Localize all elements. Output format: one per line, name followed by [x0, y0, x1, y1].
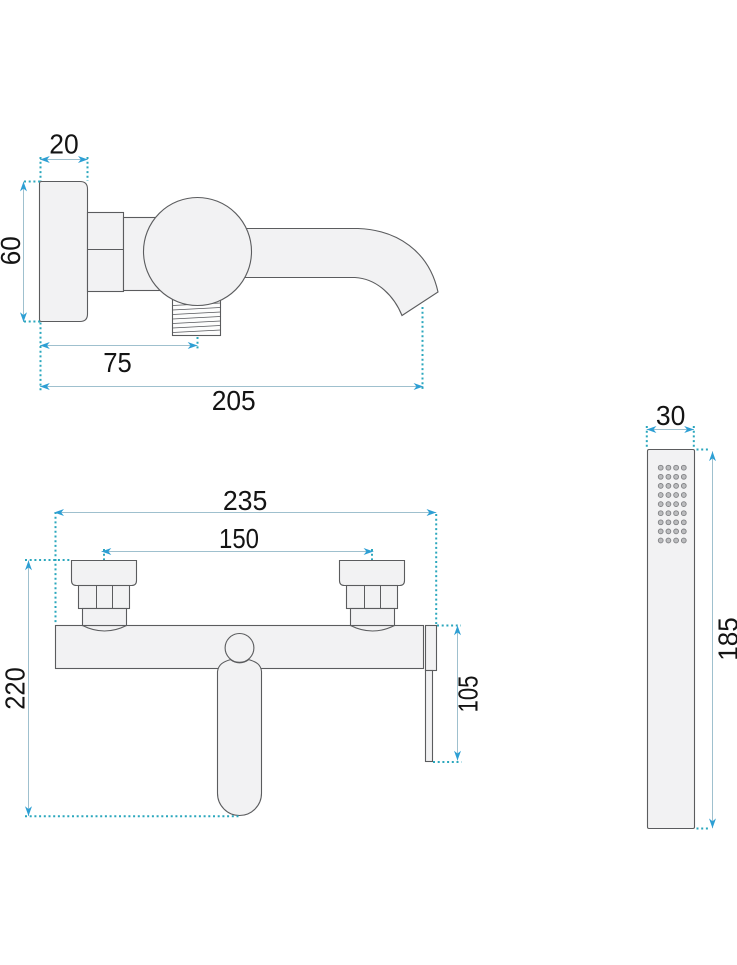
svg-text:105: 105 [452, 676, 483, 713]
svg-text:60: 60 [0, 236, 26, 265]
svg-text:150: 150 [219, 523, 259, 554]
svg-text:30: 30 [656, 400, 686, 431]
svg-text:20: 20 [49, 129, 78, 160]
svg-text:220: 220 [0, 667, 31, 710]
svg-text:185: 185 [713, 617, 737, 661]
svg-text:205: 205 [212, 385, 256, 416]
svg-text:235: 235 [223, 485, 268, 516]
svg-text:75: 75 [103, 347, 132, 378]
